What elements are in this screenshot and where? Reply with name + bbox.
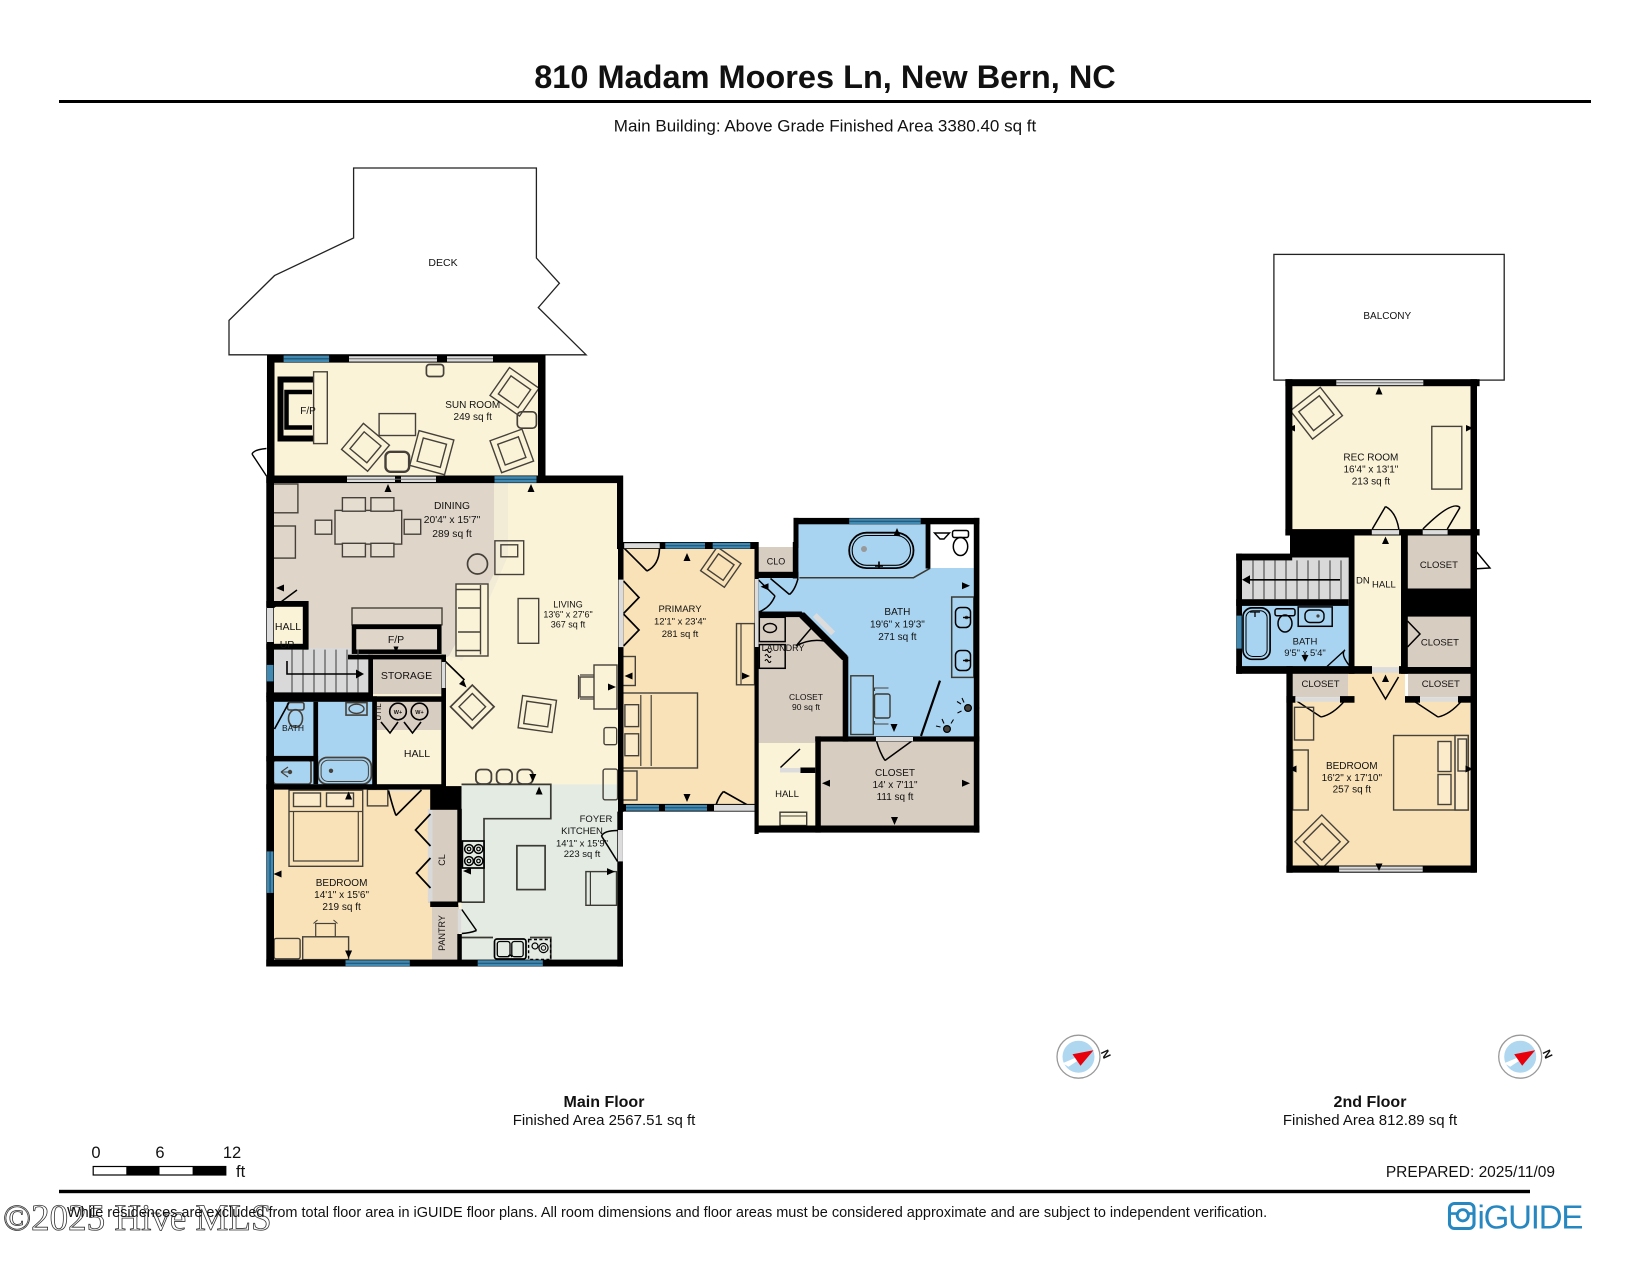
svg-text:LAUNDRY: LAUNDRY — [762, 643, 805, 653]
svg-text:20'4" x 15'7": 20'4" x 15'7" — [424, 515, 481, 526]
svg-text:FOYER: FOYER — [580, 814, 613, 825]
svg-text:12: 12 — [223, 1144, 241, 1162]
svg-text:Finished Area 812.89 sq ft: Finished Area 812.89 sq ft — [1283, 1112, 1458, 1129]
svg-text:281 sq ft: 281 sq ft — [662, 629, 699, 640]
svg-text:14'1" x 15'6": 14'1" x 15'6" — [314, 890, 369, 901]
svg-text:CLOSET: CLOSET — [1420, 560, 1458, 571]
svg-text:W+: W+ — [394, 710, 402, 716]
svg-text:223 sq ft: 223 sq ft — [564, 849, 601, 860]
svg-text:UP: UP — [280, 639, 295, 651]
svg-text:LIVING: LIVING — [553, 600, 583, 610]
svg-text:DN: DN — [1356, 576, 1370, 587]
svg-text:271 sq ft: 271 sq ft — [878, 632, 917, 643]
svg-text:CLOSET: CLOSET — [789, 692, 823, 702]
svg-text:HALL: HALL — [404, 748, 430, 760]
svg-text:KITCHEN: KITCHEN — [561, 826, 603, 837]
svg-text:UTIL: UTIL — [374, 703, 383, 721]
svg-text:PREPARED: 2025/11/09: PREPARED: 2025/11/09 — [1386, 1164, 1555, 1181]
svg-text:While residences are excluded: While residences are excluded from total… — [67, 1205, 1267, 1221]
svg-text:289 sq ft: 289 sq ft — [432, 529, 472, 540]
svg-text:6: 6 — [155, 1144, 164, 1162]
svg-text:HALL: HALL — [1372, 580, 1396, 591]
svg-text:PRIMARY: PRIMARY — [658, 604, 702, 615]
svg-text:16'2" x 17'10": 16'2" x 17'10" — [1322, 773, 1383, 784]
svg-text:BEDROOM: BEDROOM — [1326, 761, 1378, 772]
svg-text:257 sq ft: 257 sq ft — [1333, 785, 1372, 796]
svg-text:213 sq ft: 213 sq ft — [1352, 477, 1391, 488]
svg-text:249 sq ft: 249 sq ft — [454, 412, 493, 423]
svg-text:CLOSET: CLOSET — [1422, 679, 1460, 690]
svg-text:DINING: DINING — [434, 501, 470, 512]
svg-text:HALL: HALL — [775, 789, 799, 800]
svg-text:BATH: BATH — [1293, 637, 1318, 648]
svg-text:CLO: CLO — [767, 557, 786, 567]
svg-text:CLOSET: CLOSET — [1301, 679, 1339, 690]
svg-text:90 sq ft: 90 sq ft — [792, 702, 821, 712]
svg-text:Main Floor: Main Floor — [564, 1094, 645, 1111]
svg-text:F/P: F/P — [388, 634, 404, 646]
svg-text:HALL: HALL — [275, 621, 301, 633]
svg-text:CLOSET: CLOSET — [875, 768, 915, 779]
svg-text:14' x 7'11": 14' x 7'11" — [873, 780, 918, 791]
svg-text:219 sq ft: 219 sq ft — [322, 902, 361, 913]
svg-text:BEDROOM: BEDROOM — [316, 878, 368, 889]
svg-text:iGUIDE: iGUIDE — [1478, 1199, 1583, 1236]
svg-text:BALCONY: BALCONY — [1363, 311, 1411, 322]
svg-text:13'6" x 27'6": 13'6" x 27'6" — [543, 610, 592, 620]
svg-text:REC ROOM: REC ROOM — [1343, 453, 1398, 464]
svg-text:F/P: F/P — [300, 406, 316, 417]
svg-text:DECK: DECK — [428, 257, 457, 269]
svg-text:CLOSET: CLOSET — [1421, 638, 1459, 649]
svg-text:BATH: BATH — [282, 723, 304, 733]
svg-text:12'1" x 23'4": 12'1" x 23'4" — [654, 617, 706, 628]
svg-text:SUN ROOM: SUN ROOM — [445, 400, 500, 411]
svg-text:W+: W+ — [415, 710, 423, 716]
svg-text:ft: ft — [236, 1163, 246, 1181]
svg-text:19'6" x 19'3": 19'6" x 19'3" — [870, 620, 925, 631]
svg-text:PANTRY: PANTRY — [437, 915, 447, 951]
svg-text:0: 0 — [91, 1144, 100, 1162]
svg-text:111 sq ft: 111 sq ft — [877, 792, 914, 803]
svg-text:Finished Area 2567.51 sq ft: Finished Area 2567.51 sq ft — [513, 1112, 696, 1129]
svg-text:14'1" x 15'9": 14'1" x 15'9" — [556, 839, 608, 850]
svg-text:2nd Floor: 2nd Floor — [1334, 1094, 1407, 1111]
svg-text:Main Building: Above Grade Fin: Main Building: Above Grade Finished Area… — [614, 117, 1037, 136]
svg-text:CL: CL — [437, 854, 447, 866]
svg-text:BATH: BATH — [884, 607, 910, 618]
svg-text:367 sq ft: 367 sq ft — [551, 620, 586, 630]
svg-text:16'4" x 13'1": 16'4" x 13'1" — [1343, 465, 1398, 476]
svg-text:810 Madam Moores Ln, New Bern,: 810 Madam Moores Ln, New Bern, NC — [534, 59, 1116, 95]
svg-text:STORAGE: STORAGE — [381, 670, 432, 682]
